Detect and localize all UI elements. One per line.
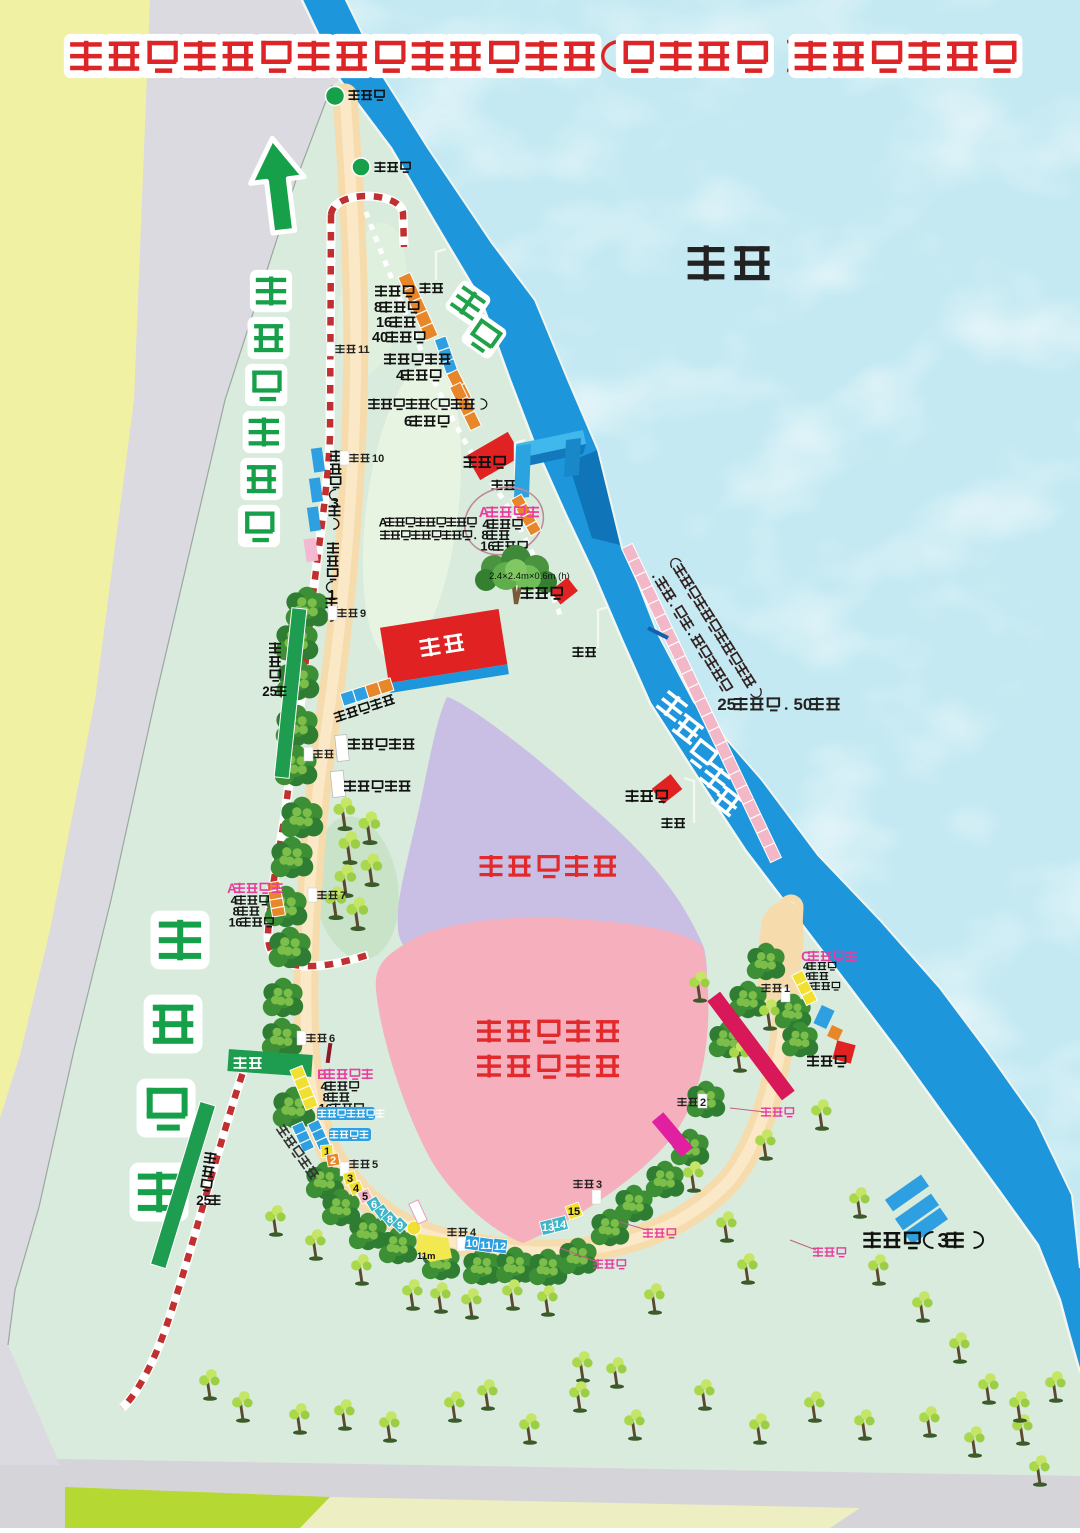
- svg-text:2: 2: [196, 1193, 203, 1208]
- svg-text:5: 5: [794, 695, 803, 714]
- svg-text:2: 2: [330, 1155, 336, 1167]
- svg-text:1: 1: [784, 983, 790, 995]
- svg-text:14: 14: [554, 1219, 567, 1231]
- svg-text:7: 7: [340, 890, 346, 902]
- svg-text:1: 1: [376, 315, 384, 331]
- svg-text:9: 9: [360, 608, 366, 620]
- svg-text:2.4×2.4m×0.6m (h): 2.4×2.4m×0.6m (h): [489, 571, 570, 582]
- svg-text:13: 13: [542, 1222, 554, 1234]
- svg-text:11: 11: [480, 1240, 492, 1252]
- svg-text:2: 2: [717, 695, 726, 714]
- svg-text:1: 1: [480, 539, 487, 554]
- svg-text:2: 2: [700, 1097, 706, 1109]
- svg-text:12: 12: [494, 1241, 506, 1253]
- svg-text:10: 10: [372, 453, 384, 465]
- svg-text:5: 5: [372, 1159, 378, 1171]
- svg-text:11: 11: [358, 344, 370, 356]
- svg-text:2: 2: [262, 684, 269, 699]
- svg-text:11m: 11m: [417, 1251, 436, 1262]
- svg-text:10: 10: [466, 1238, 478, 1250]
- svg-text:3: 3: [596, 1179, 602, 1191]
- svg-text:15: 15: [568, 1206, 580, 1218]
- svg-text:9: 9: [397, 1220, 403, 1232]
